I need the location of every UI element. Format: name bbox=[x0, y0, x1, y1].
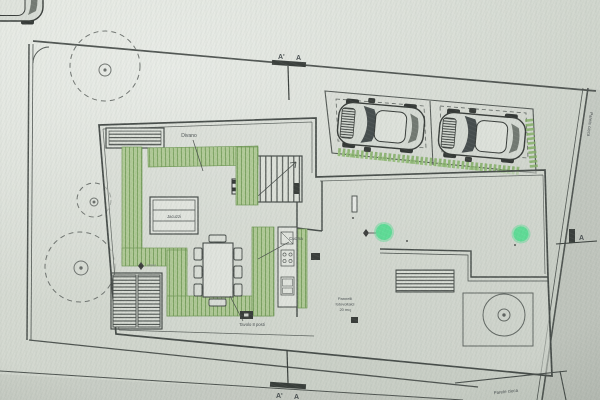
divano-label: Divano bbox=[181, 133, 197, 139]
note-line: Pannelli bbox=[338, 296, 352, 301]
green-marker-dot-2[interactable] bbox=[514, 227, 529, 242]
cucina-label: Cucina bbox=[289, 236, 303, 241]
chair bbox=[209, 235, 226, 242]
section-letter: A bbox=[579, 235, 584, 242]
table-top bbox=[203, 243, 233, 297]
note-line: fotovoltaici bbox=[336, 301, 355, 306]
car-top-view bbox=[437, 105, 527, 166]
site-plan-photo: Jacuzzi bbox=[0, 0, 600, 400]
note-box bbox=[351, 317, 358, 323]
chair bbox=[234, 266, 242, 278]
terrace-steps bbox=[396, 270, 454, 292]
jacuzzi-room: Jacuzzi bbox=[150, 197, 198, 234]
chair bbox=[194, 266, 202, 278]
tree-icon bbox=[45, 232, 115, 302]
wall-niche bbox=[294, 183, 299, 194]
section-marker-top: A' A bbox=[272, 54, 306, 100]
chair bbox=[194, 284, 202, 296]
jacuzzi-label: Jacuzzi bbox=[167, 214, 181, 219]
note-line: 20 mq bbox=[339, 307, 350, 312]
section-letter: A' bbox=[276, 393, 283, 400]
section-letter: A bbox=[294, 394, 299, 400]
parete-cieca-bottom-label: Parete cieca bbox=[493, 388, 518, 396]
section-letter: A' bbox=[278, 54, 285, 61]
chair bbox=[194, 248, 202, 260]
ceiling-point bbox=[514, 244, 516, 246]
chair bbox=[209, 299, 226, 306]
door-leaf bbox=[352, 196, 357, 212]
tree-icon bbox=[70, 31, 140, 101]
chair bbox=[234, 248, 242, 260]
chair bbox=[234, 284, 242, 296]
car-top-view bbox=[336, 95, 426, 156]
ceiling-point bbox=[406, 240, 408, 242]
ceiling-point bbox=[352, 217, 354, 219]
floor-plan-drawing: Jacuzzi bbox=[0, 0, 600, 400]
control-box bbox=[311, 253, 320, 260]
tavolo-label: Tavolo 8 posti bbox=[239, 322, 265, 327]
ventilation-grate bbox=[106, 128, 164, 148]
green-marker-dot-1[interactable] bbox=[376, 224, 392, 240]
section-letter: A bbox=[296, 55, 301, 62]
step-unit-detail bbox=[244, 314, 249, 317]
